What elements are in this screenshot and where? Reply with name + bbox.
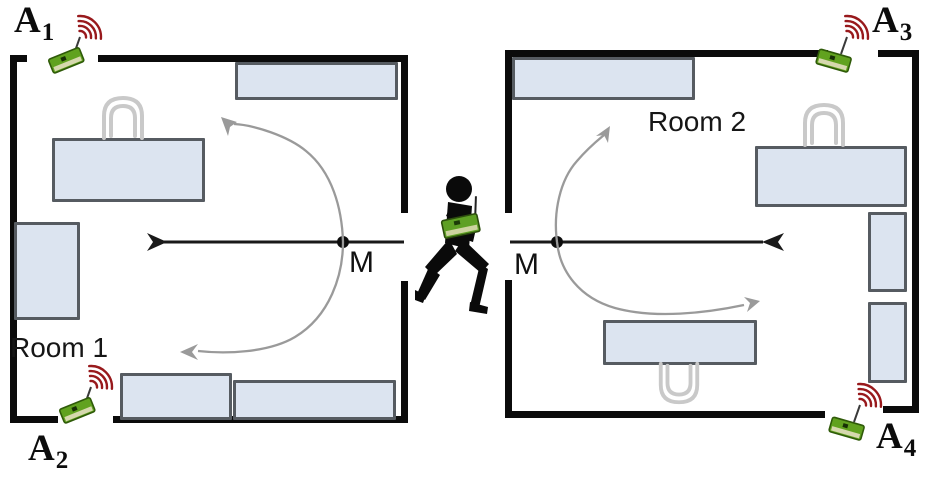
uwb-tag-icon xyxy=(438,196,483,238)
room1-bottom-table-2 xyxy=(233,380,396,420)
radio-waves-icon xyxy=(89,366,112,389)
room1-wall-right-upper xyxy=(401,55,408,213)
room2-bottom-desk xyxy=(603,320,757,365)
trajectory-arrowhead-icon xyxy=(221,117,237,136)
room2-wall-left-upper xyxy=(505,50,512,213)
radio-waves-icon xyxy=(845,16,868,39)
room1-label: Room 1 xyxy=(10,332,108,364)
anchor-A1-device-icon xyxy=(46,14,112,78)
chair-icon xyxy=(648,360,710,408)
room2-trajectory-lower xyxy=(557,242,744,314)
anchor-label-a1: A1 xyxy=(14,2,54,45)
radio-waves-icon xyxy=(78,16,101,39)
room2-trajectory-upper xyxy=(556,135,604,242)
room1-trajectory-upper xyxy=(234,124,343,242)
room2-axis-arrowhead-icon xyxy=(762,233,784,251)
room1-wall-right-lower xyxy=(401,281,408,423)
room2-wall-bottom xyxy=(505,411,825,418)
room1-wall-bottom-stub xyxy=(10,416,58,423)
room2-measurement-dot xyxy=(551,236,563,248)
room2-right-cabinet-2 xyxy=(868,302,907,383)
room1-desk xyxy=(52,138,205,202)
chair-icon xyxy=(793,99,855,149)
room1-bottom-table-1 xyxy=(120,373,232,420)
radio-waves-icon xyxy=(858,384,881,407)
room1-axis-arrowhead-icon xyxy=(147,233,167,251)
room1-left-cabinet xyxy=(14,222,80,320)
two-room-positioning-diagram: A1 A2 A3 A4 Room 1 Room 2 M M xyxy=(0,0,946,490)
room1-measurement-dot xyxy=(337,236,349,248)
trajectory-arrowhead-icon xyxy=(744,297,760,312)
room2-m-label: M xyxy=(514,248,539,282)
room2-wall-top xyxy=(505,50,828,57)
room1-wall-top-stub xyxy=(10,55,27,62)
room2-label: Room 2 xyxy=(648,106,746,138)
room2-wall-left-lower xyxy=(505,280,512,418)
room1-m-label: M xyxy=(349,246,374,280)
room2-wall-right xyxy=(912,50,919,413)
walking-person-icon xyxy=(415,175,500,315)
room1-trajectory-lower xyxy=(198,242,343,352)
anchor-label-a3: A3 xyxy=(872,2,912,45)
chair-icon xyxy=(92,92,154,142)
room2-right-desk xyxy=(755,146,907,207)
anchor-label-a2: A2 xyxy=(28,430,68,473)
anchor-A2-device-icon xyxy=(57,364,123,428)
trajectory-arrowhead-icon xyxy=(180,344,198,360)
room2-right-cabinet-1 xyxy=(868,212,907,292)
room2-top-shelf xyxy=(512,57,695,100)
anchor-label-a4: A4 xyxy=(876,418,916,461)
room1-wall-top xyxy=(98,55,408,62)
anchor-A3-device-icon xyxy=(813,14,879,78)
trajectory-arrowhead-icon xyxy=(596,126,610,143)
room1-top-shelf xyxy=(235,62,398,100)
